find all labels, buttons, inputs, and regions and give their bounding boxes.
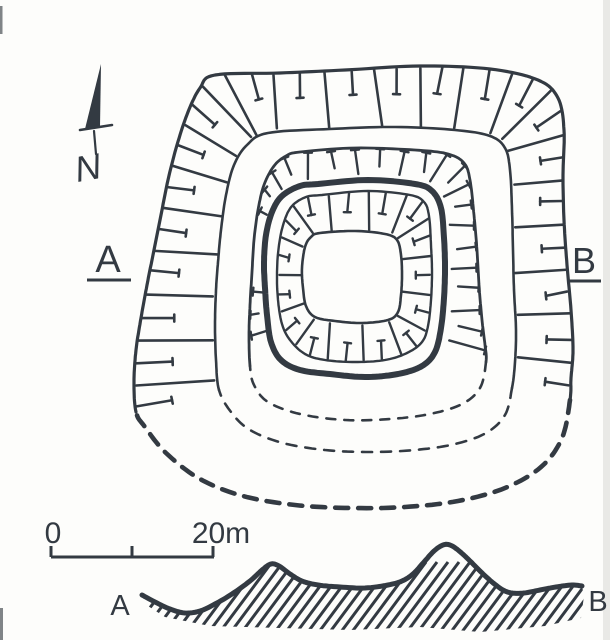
outer-bank-hachures <box>136 67 572 407</box>
plan-drawing <box>0 0 610 640</box>
scale-start-label: 0 <box>38 519 68 549</box>
section-label-b: B <box>580 588 610 617</box>
section-hatching <box>120 562 610 640</box>
outer-bank-inner-edge-ring <box>215 127 516 452</box>
earthwork-plan-page: { "page": { "paper_color": "#fdfdfb", "i… <box>0 0 610 640</box>
section-marker-a: A <box>88 241 128 279</box>
central-platform-outline <box>302 231 402 323</box>
section-label-a: A <box>102 592 138 621</box>
scan-edge-artifacts <box>0 0 610 640</box>
section-profile <box>120 544 610 640</box>
north-arrow-icon <box>80 64 112 154</box>
north-label: N <box>65 147 111 189</box>
scale-end-label: 20m <box>184 519 258 549</box>
section-marker-underlines <box>87 280 601 281</box>
section-marker-b: B <box>566 243 602 279</box>
